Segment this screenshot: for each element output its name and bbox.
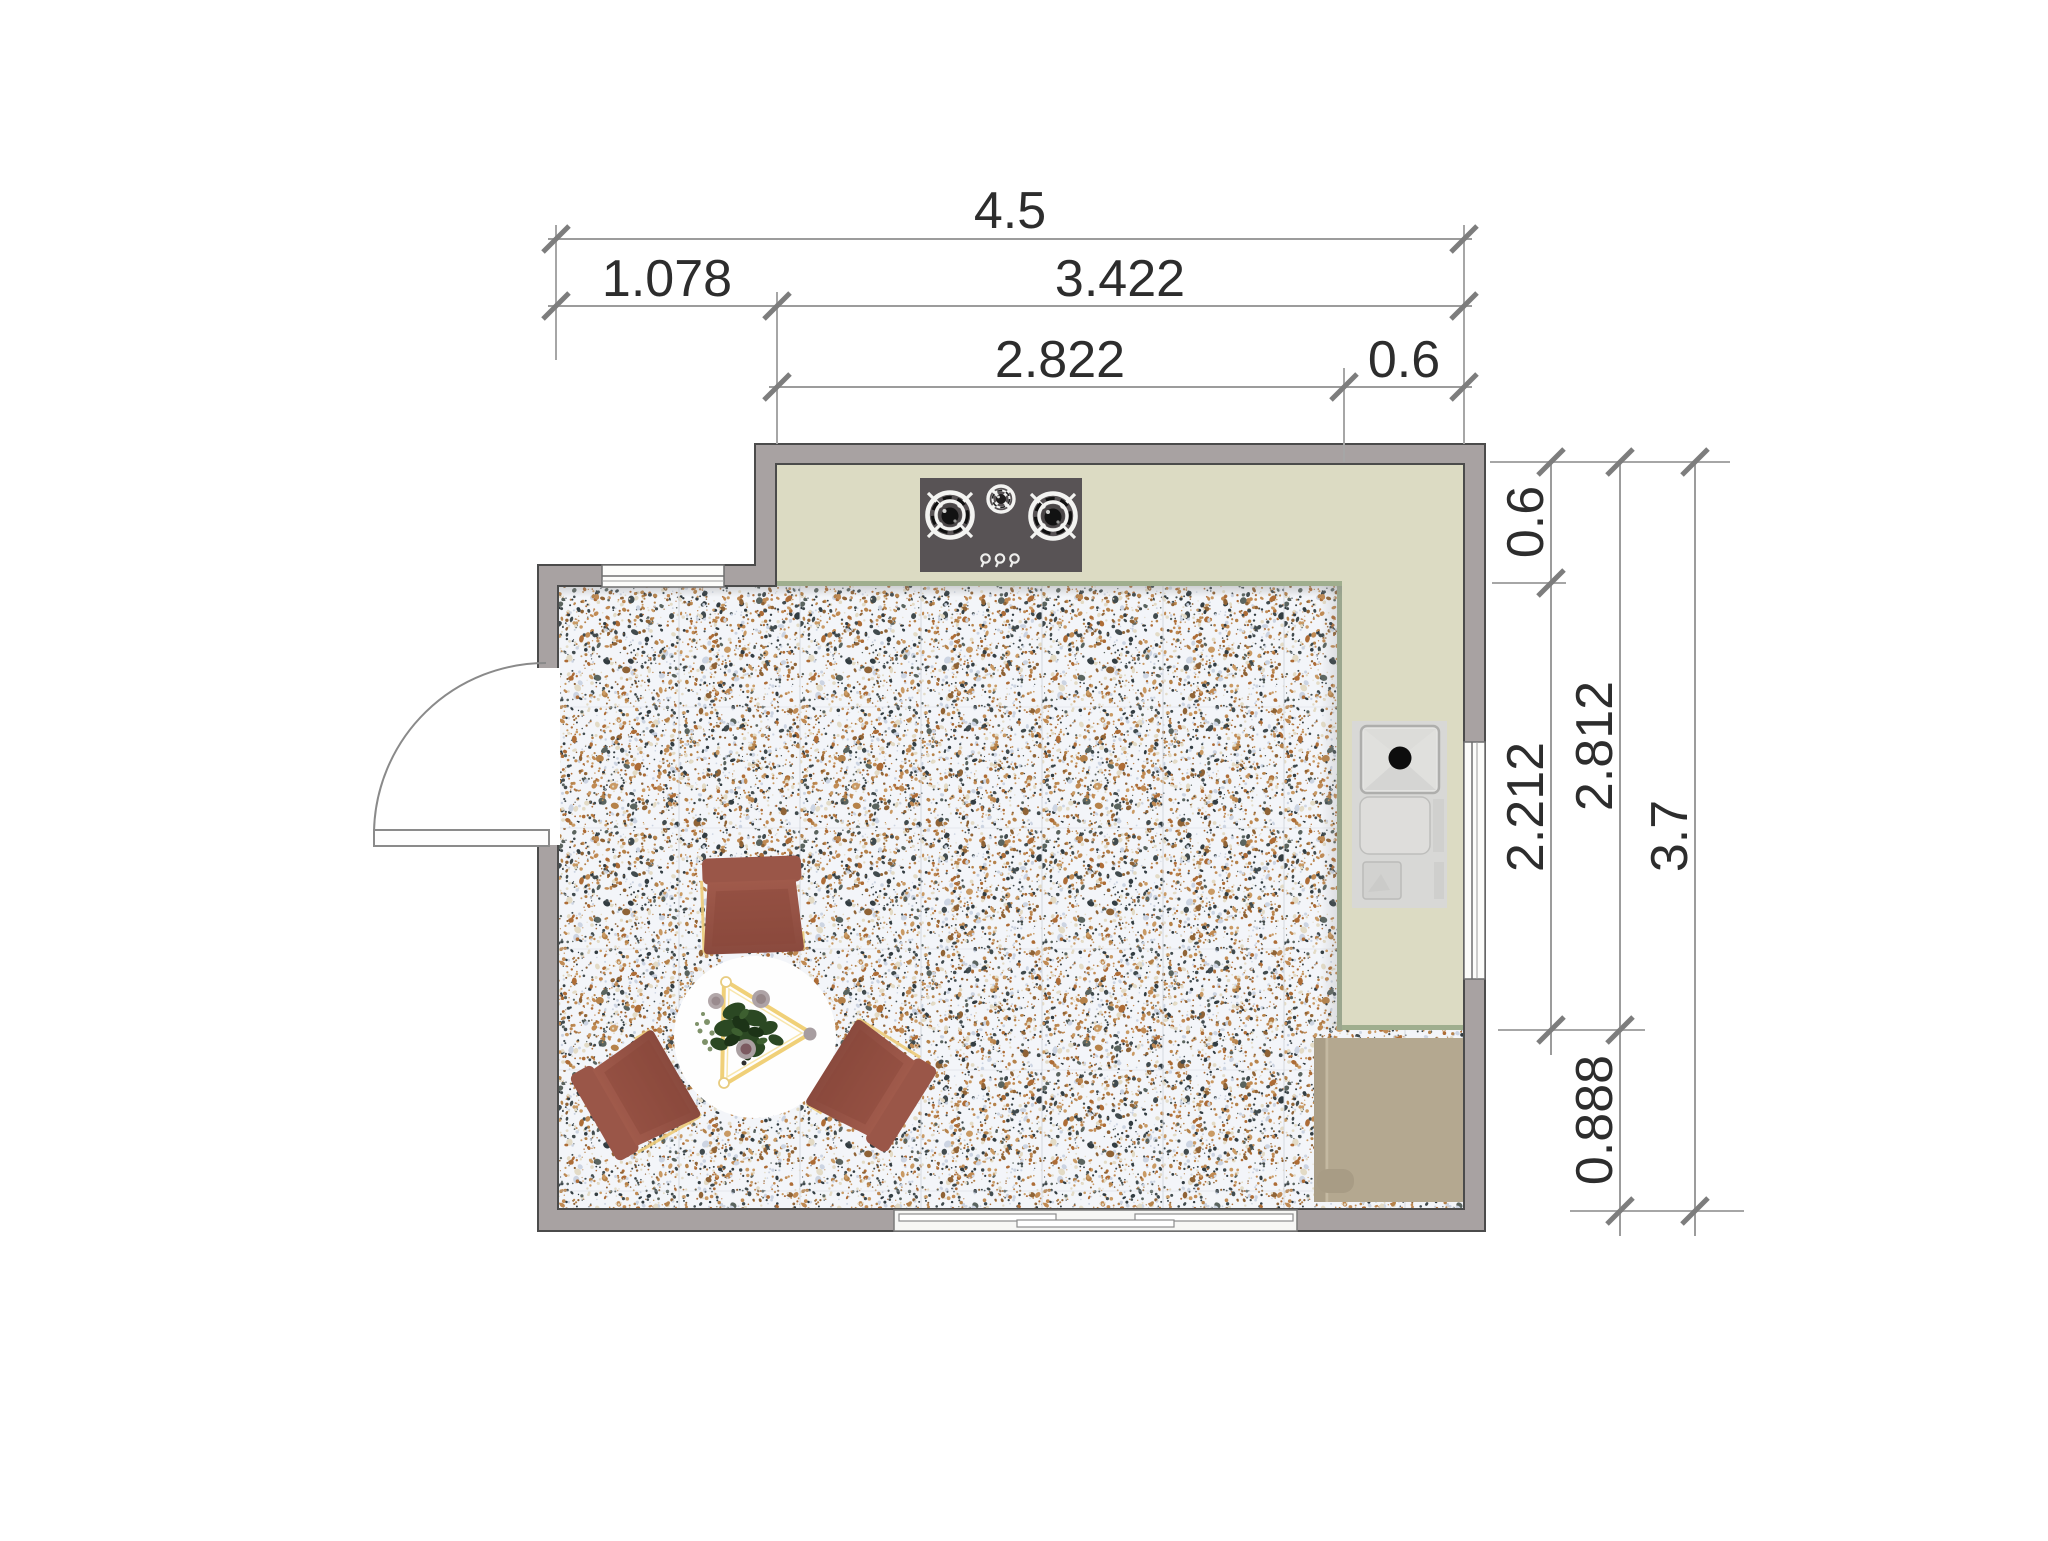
svg-text:3.422: 3.422 [1055,250,1185,308]
svg-text:1.078: 1.078 [602,250,732,308]
svg-text:4.5: 4.5 [974,182,1046,240]
svg-text:0.6: 0.6 [1368,331,1440,389]
svg-text:2.812: 2.812 [1566,681,1624,811]
svg-text:0.888: 0.888 [1566,1055,1624,1185]
svg-text:3.7: 3.7 [1641,800,1699,872]
svg-text:2.822: 2.822 [995,331,1125,389]
svg-text:0.6: 0.6 [1497,486,1555,558]
svg-text:2.212: 2.212 [1497,742,1555,872]
